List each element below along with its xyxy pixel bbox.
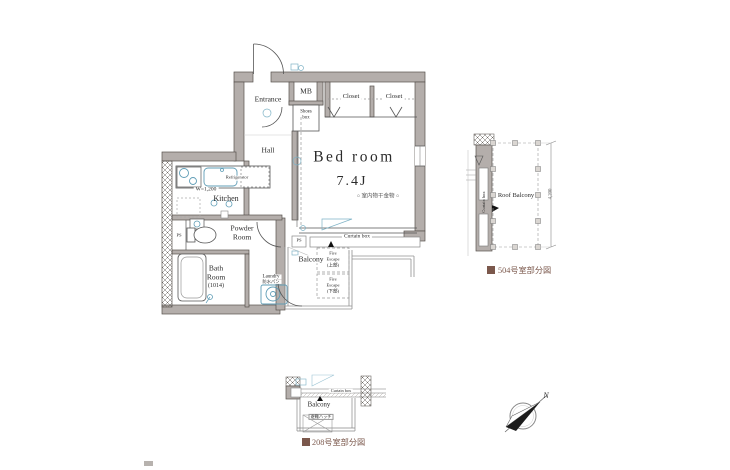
label-curtain-box-208: Curtain box: [329, 389, 353, 393]
label-curtain-box: Curtain box: [342, 234, 372, 240]
caption-square-208: [302, 438, 310, 446]
label-hall: Hall: [262, 146, 275, 154]
cropped-edge-mark: [144, 461, 153, 466]
label-curtain-box-504: Curtain box: [482, 191, 487, 212]
floor-plan-page: Entrance MB Closet Closet Shoes box Hall…: [0, 0, 730, 470]
compass-north-label: N: [543, 392, 548, 400]
label-kitchen: Kitchen: [213, 195, 238, 203]
label-kitchen-width: W=1,200: [194, 187, 219, 193]
hatched-wall: [162, 161, 172, 307]
label-bath-room-2: Room: [207, 273, 225, 281]
dimension-504: 4,200: [550, 189, 555, 200]
detail-208-graphics: [286, 375, 386, 432]
label-fire-escape-lower-1: Fire: [327, 278, 338, 283]
label-balcony-208: Balcony: [308, 403, 331, 410]
toilet-icon: [194, 227, 216, 243]
label-refrigerator: Refrigerator: [224, 176, 250, 181]
label-closet-right: Closet: [384, 94, 405, 101]
label-powder-room-1: Powder: [231, 224, 254, 232]
entrance-light-icon: [263, 109, 271, 117]
label-bedroom-note: ○ 室内物干金物 ○: [357, 194, 399, 200]
label-fire-escape-lower-3: (下部): [325, 290, 341, 295]
label-hatch-208: 避難ハッチ: [309, 414, 334, 420]
caption-504: 504号室部分図: [498, 264, 551, 276]
label-closet-left: Closet: [341, 94, 362, 101]
closet-hangers: [328, 107, 402, 117]
label-bath-room-1: Bath: [209, 264, 223, 272]
caption-square-504: [487, 266, 495, 274]
label-shoes-box-2: box: [302, 117, 309, 122]
window-in-wall: [415, 146, 425, 166]
label-balcony: Balcony: [297, 255, 326, 263]
label-entrance: Entrance: [255, 95, 282, 103]
label-mb: MB: [300, 87, 312, 95]
label-bedroom: Bed room: [313, 149, 395, 165]
doorbell-icon: [291, 64, 298, 70]
label-fire-escape-upper-3: (上部): [325, 264, 341, 269]
caption-208: 208号室部分図: [312, 436, 365, 448]
label-ps-left: PS: [176, 234, 181, 239]
label-laundry-sub: 防水パン: [261, 280, 282, 284]
compass-icon: [505, 396, 546, 432]
kitchen-fixtures: [176, 166, 270, 218]
label-bath-room-3: (1014): [208, 283, 224, 289]
label-bedroom-size: 7.4J: [337, 175, 368, 189]
label-fire-escape-lower-2: Escape: [324, 284, 341, 289]
label-ps-window: PS: [296, 239, 301, 244]
label-fire-escape-upper-1: Fire: [327, 252, 338, 257]
label-powder-room-2: Room: [233, 233, 251, 241]
powder-room-fixtures: [186, 219, 216, 250]
label-roof-balcony: Roof Balcony: [498, 193, 534, 200]
label-fire-escape-upper-2: Escape: [324, 258, 341, 263]
